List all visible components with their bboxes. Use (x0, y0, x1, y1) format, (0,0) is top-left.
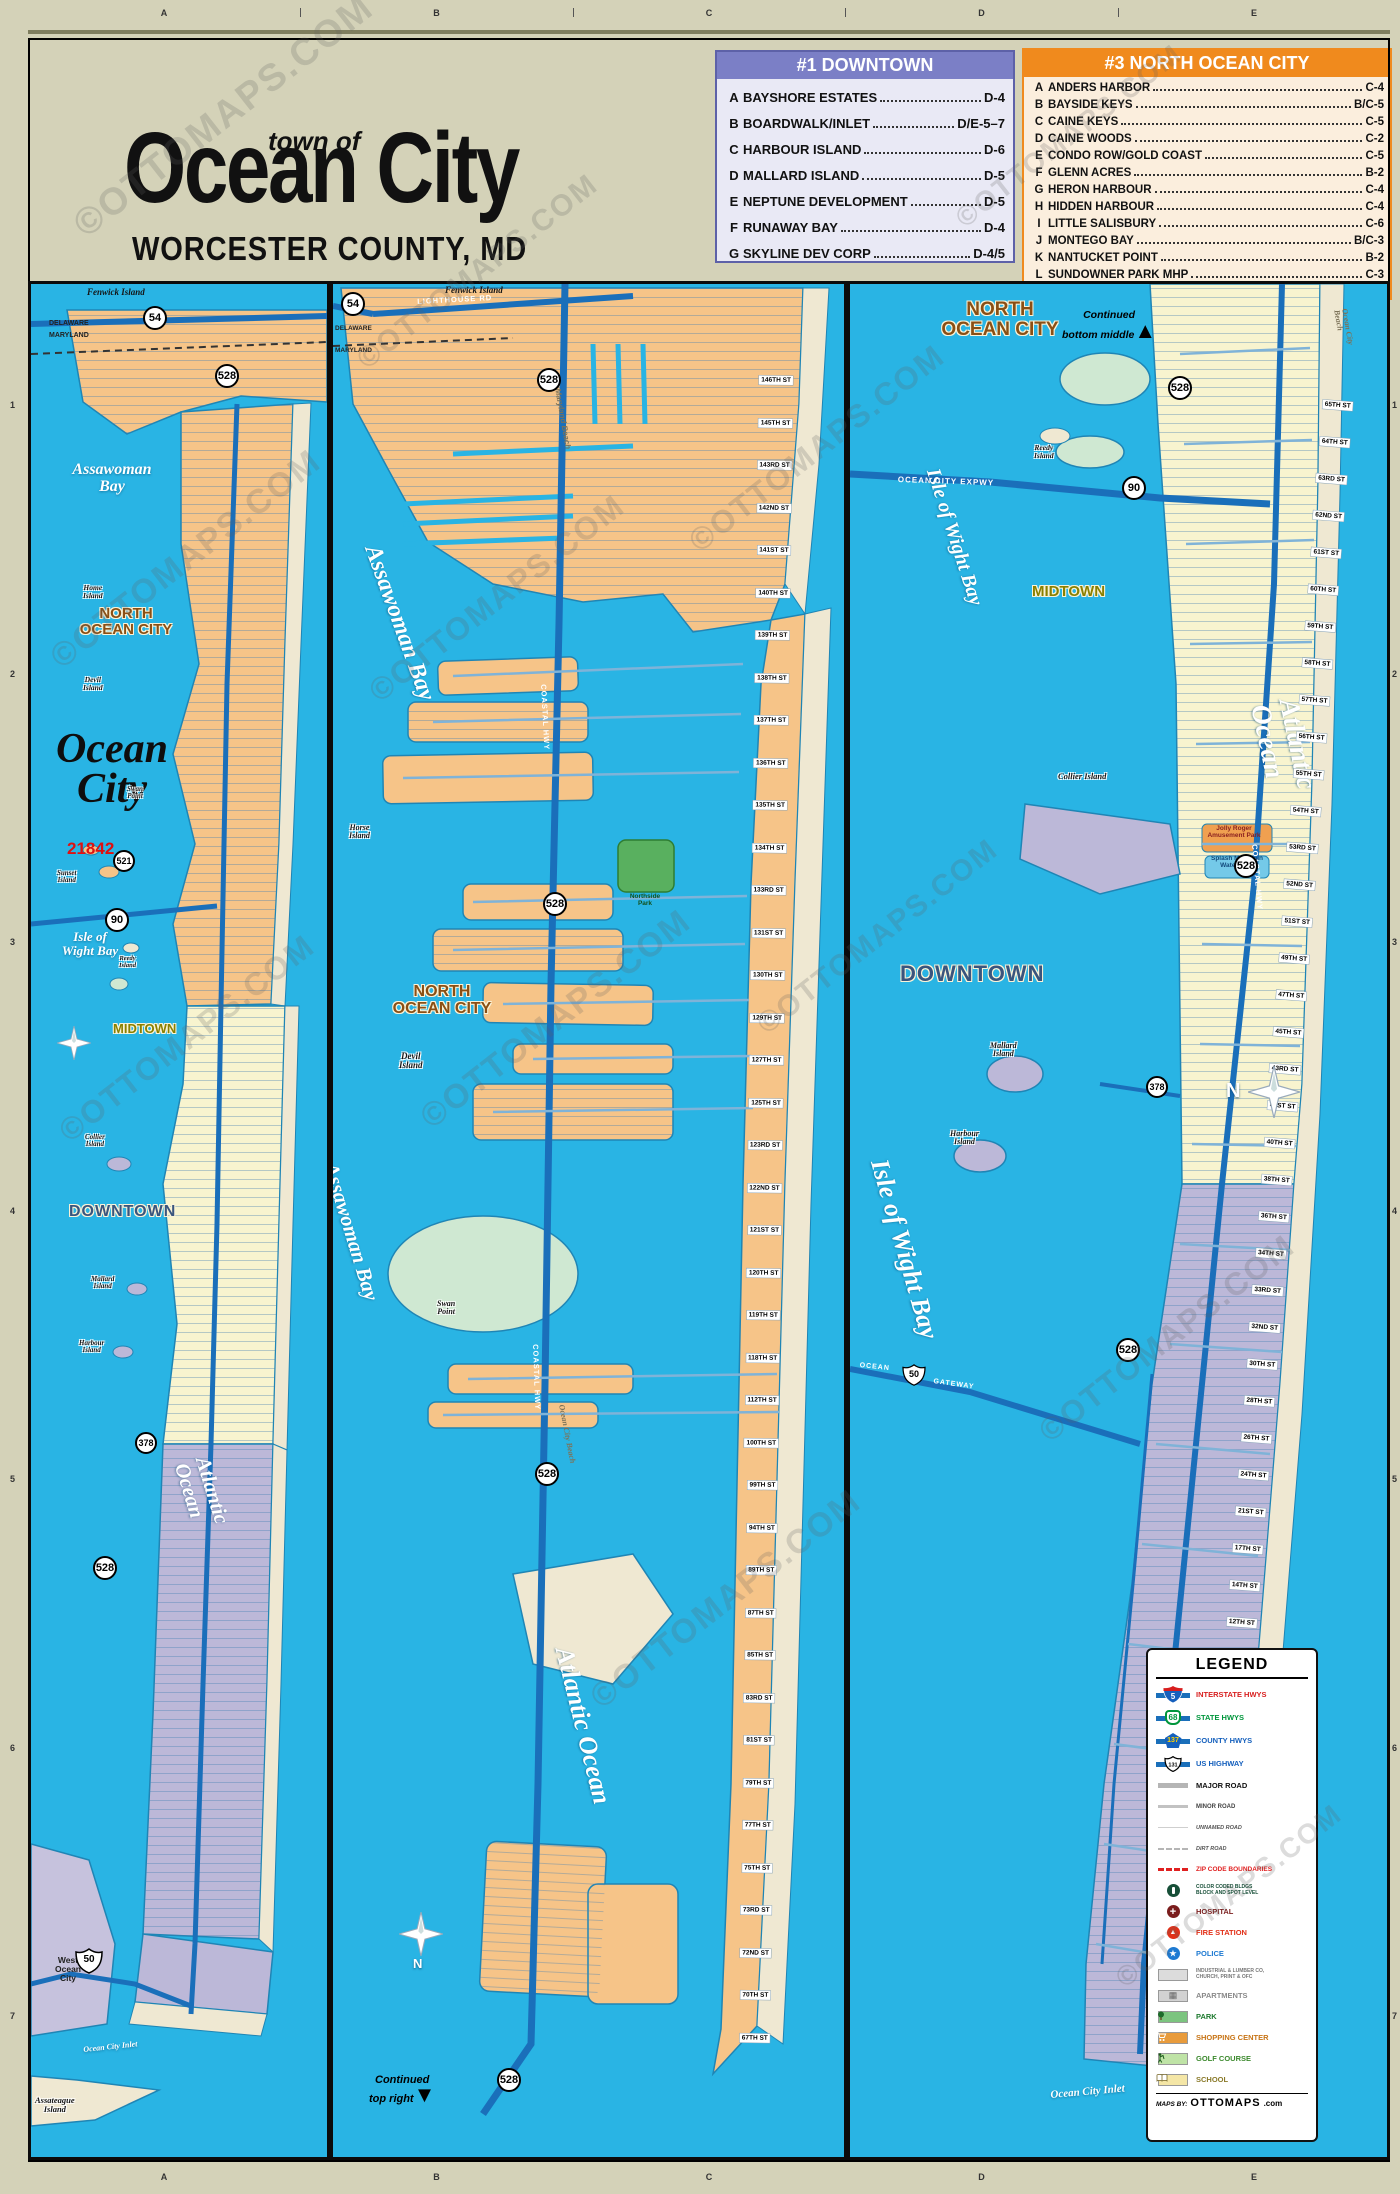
street-label: 129TH ST (750, 1013, 784, 1022)
unnamed-road-line-icon (1158, 1827, 1188, 1829)
label-coastal-hwy: COASTAL HWY (531, 1344, 541, 1410)
ruler-letter: E (1251, 8, 1257, 18)
ruler-letter: C (706, 8, 713, 18)
legend-interstate: 5 INTERSTATE HWYS (1156, 1683, 1308, 1706)
continued-note: Continued top right▼ (369, 2074, 435, 2105)
map-panel-north-ocean-city: Fenwick Island 54 LIGHTHOUSE RD DELAWARE… (330, 281, 847, 2160)
label-delaware: DELAWARE (335, 326, 372, 333)
label-sunset-island: Sunset Island (57, 870, 76, 885)
ruler-letter: D (978, 8, 985, 18)
label-devil-island: Devil Island (83, 676, 103, 692)
ruler-top: ABCDE (0, 8, 1400, 22)
ruler-tick (300, 8, 301, 17)
minor-road-line-icon (1158, 1805, 1188, 1808)
route-shield-528: 528 (93, 1556, 117, 1580)
street-label: 38TH ST (1261, 1174, 1292, 1185)
street-label: 56TH ST (1296, 732, 1327, 743)
legend-credit: MAPS BY: OTTOMAPS .com (1156, 2093, 1308, 2109)
street-label: 112TH ST (745, 1395, 778, 1404)
interstate-shield-icon: 5 (1163, 1686, 1183, 1703)
legend-golf-course: GOLF COURSE (1156, 2048, 1308, 2069)
legend-fire-station: ▲ FIRE STATION (1156, 1922, 1308, 1943)
county-hwy-shield-icon: 137 (1165, 1733, 1182, 1748)
street-label: 136TH ST (754, 758, 788, 767)
street-label: 65TH ST (1322, 400, 1353, 411)
route-shield-528: 528 (543, 892, 567, 916)
street-label: 94TH ST (747, 1523, 777, 1532)
street-label: 32ND ST (1249, 1322, 1280, 1333)
street-label: 40TH ST (1264, 1137, 1295, 1148)
street-label: 121ST ST (748, 1225, 781, 1234)
ruler-bar (28, 30, 1390, 34)
ruler-number: 3 (1392, 937, 1397, 947)
state-hwy-shield-icon: 68 (1165, 1710, 1181, 1725)
ruler-bottom: ABCDE (0, 2172, 1400, 2186)
street-label: 131ST ST (752, 928, 785, 937)
street-label: 83RD ST (744, 1693, 775, 1702)
street-label: 64TH ST (1319, 437, 1350, 448)
label-assawoman-bay: Assawoman Bay (57, 462, 167, 496)
down-arrow-icon: ▼ (414, 2082, 436, 2107)
route-shield-521: 521 (113, 850, 135, 872)
street-label: 79TH ST (743, 1778, 773, 1787)
street-label: 55TH ST (1293, 769, 1324, 780)
book-icon (1158, 2074, 1188, 2086)
street-label-column: 146TH ST145TH ST143RD ST142ND ST141ST ST… (639, 374, 793, 2096)
street-label: 62ND ST (1313, 510, 1344, 521)
street-label: 45TH ST (1273, 1027, 1304, 1038)
street-label: 142ND ST (757, 503, 791, 512)
ruler-number: 5 (10, 1474, 15, 1484)
industrial-swatch-icon (1158, 1969, 1188, 1981)
street-label: 49TH ST (1279, 953, 1310, 964)
legend-hospital: + HOSPITAL (1156, 1901, 1308, 1922)
apartments-icon: ▦ (1158, 1990, 1188, 2002)
street-label: 57TH ST (1299, 695, 1330, 706)
street-label: 61ST ST (1311, 547, 1341, 558)
street-label: 137TH ST (755, 715, 789, 724)
street-label: 52ND ST (1284, 879, 1315, 890)
ruler-number: 7 (1392, 2011, 1397, 2021)
street-label: 26TH ST (1241, 1432, 1272, 1443)
ruler-number: 1 (10, 400, 15, 410)
street-label: 47TH ST (1276, 990, 1307, 1001)
ruler-left: 1234567 (10, 0, 24, 2194)
ruler-letter: A (161, 8, 168, 18)
street-label: 118TH ST (746, 1353, 779, 1362)
label-maryland: MARYLAND (49, 332, 89, 339)
up-arrow-icon: ▲ (1134, 318, 1156, 343)
street-label: 141ST ST (757, 546, 790, 555)
label-home-island: Home Island (83, 584, 103, 600)
ruler-letter: D (978, 2172, 985, 2182)
street-label: 125TH ST (749, 1098, 783, 1107)
street-label: 140TH ST (756, 588, 790, 597)
compass-north-letter: N (1226, 1080, 1240, 1103)
label-maryland: MARYLAND (335, 348, 372, 355)
label-midtown: MIDTOWN (1032, 584, 1105, 600)
ruler-letter: B (433, 2172, 440, 2182)
street-label: 81ST ST (744, 1735, 774, 1744)
ocean-city-map-page: ABCDE ABCDE 1234567 1234567 ©OTTOMAPS.CO… (0, 0, 1400, 2194)
street-label: 146TH ST (759, 376, 793, 385)
legend: LEGEND 5 INTERSTATE HWYS 68 STATE HWYS 1… (1146, 1648, 1318, 2142)
ruler-tick (573, 8, 574, 17)
label-assateague-island: Assateague Island (35, 2096, 75, 2114)
legend-shopping-center: SHOPPING CENTER (1156, 2027, 1308, 2048)
street-label: 89TH ST (746, 1565, 776, 1574)
street-label: 99TH ST (747, 1480, 777, 1489)
svg-text:5: 5 (1171, 1692, 1176, 1701)
legend-us-highway: 131 US HIGHWAY (1156, 1752, 1308, 1775)
street-label: 119TH ST (747, 1310, 780, 1319)
legend-major-road: MAJOR ROAD (1156, 1775, 1308, 1796)
route-shield-50: 50 (902, 1364, 926, 1386)
street-label: 63RD ST (1316, 473, 1347, 484)
route-shield-90: 90 (105, 908, 129, 932)
label-north-ocean-city: NORTH OCEAN CITY (357, 984, 527, 1018)
label-mallard-island: Mallard Island (91, 1276, 114, 1291)
street-label: 60TH ST (1308, 584, 1339, 595)
street-label: 34TH ST (1256, 1248, 1287, 1259)
label-downtown: DOWNTOWN (69, 1204, 176, 1221)
street-label: 21ST ST (1236, 1506, 1266, 1517)
fire-station-icon: ▲ (1167, 1926, 1180, 1939)
label-mallard-island: Mallard Island (990, 1042, 1017, 1059)
route-shield-528: 528 (497, 2068, 521, 2092)
ruler-number: 4 (1392, 1206, 1397, 1216)
golfer-icon (1158, 2053, 1188, 2065)
street-label: 58TH ST (1302, 658, 1333, 669)
label-collier-island: Collier Island (85, 1134, 105, 1149)
route-shield-528: 528 (1234, 854, 1258, 878)
route-shield-528: 528 (1168, 376, 1192, 400)
park-tree-icon (1158, 2011, 1188, 2023)
legend-apartments: ▦ APARTMENTS (1156, 1985, 1308, 2006)
street-label: 134TH ST (753, 843, 787, 852)
us-hwy-shield-icon: 131 (1164, 1756, 1182, 1772)
route-shield-378: 378 (135, 1432, 157, 1454)
map-panel-overview: Fenwick Island 54 DELAWARE MARYLAND 528 … (28, 281, 330, 2160)
legend-minor-road: MINOR ROAD (1156, 1796, 1308, 1817)
ruler-letter: E (1251, 2172, 1257, 2182)
label-north-ocean-city: NORTH OCEAN CITY (61, 606, 191, 638)
street-label: 73RD ST (741, 1905, 772, 1914)
legend-county-hwys: 137 COUNTY HWYS (1156, 1729, 1308, 1752)
ruler-right: 1234567 (1392, 0, 1400, 2194)
street-label: 59TH ST (1305, 621, 1336, 632)
street-label: 53RD ST (1287, 842, 1318, 853)
ruler-number: 3 (10, 937, 15, 947)
street-label: 75TH ST (742, 1863, 772, 1872)
street-label: 28TH ST (1244, 1396, 1275, 1407)
label-ocean-city: Ocean City (47, 730, 177, 810)
ruler-letter: A (161, 2172, 168, 2182)
label-swan-point: Swan Point (437, 1300, 455, 1317)
shopping-cart-icon (1158, 2032, 1188, 2044)
route-shield-54: 54 (143, 306, 167, 330)
color-coded-icon (1167, 1884, 1180, 1897)
label-reedy-island: Reedy Island (1034, 444, 1054, 460)
street-label: 72ND ST (740, 1948, 771, 1957)
street-label: 123RD ST (748, 1140, 782, 1149)
street-label: 36TH ST (1259, 1211, 1290, 1222)
street-label: 139TH ST (756, 631, 790, 640)
hospital-icon: + (1167, 1905, 1180, 1918)
label-zip-code: 21842 (67, 840, 114, 858)
route-shield-90: 90 (1122, 476, 1146, 500)
street-label: 127TH ST (750, 1055, 784, 1064)
street-label: 145TH ST (759, 418, 793, 427)
route-shield-50: 50 (75, 1948, 103, 1974)
ruler-number: 7 (10, 2011, 15, 2021)
street-label: 100TH ST (744, 1438, 778, 1447)
major-road-line-icon (1158, 1783, 1188, 1788)
legend-color-coded: COLOR CODED BLDGSBLOCK AND SPOT LEVEL (1156, 1880, 1308, 1901)
ruler-tick (1118, 8, 1119, 17)
police-icon: ★ (1167, 1947, 1180, 1960)
street-label: 30TH ST (1247, 1359, 1278, 1370)
legend-title: LEGEND (1156, 1656, 1308, 1674)
street-label: 14TH ST (1229, 1580, 1260, 1591)
zip-boundary-line-icon (1158, 1868, 1188, 1871)
route-shield-528: 528 (537, 368, 561, 392)
dirt-road-line-icon (1158, 1848, 1188, 1850)
street-label: 51ST ST (1282, 916, 1312, 927)
route-shield-378: 378 (1146, 1076, 1168, 1098)
label-collier-island: Collier Island (1058, 772, 1106, 781)
street-label: 17TH ST (1232, 1543, 1263, 1554)
street-label: 135TH ST (753, 800, 787, 809)
street-label: 77TH ST (743, 1820, 773, 1829)
map-panel-downtown-midtown: NORTH OCEAN CITY Continued bottom middle… (847, 281, 1390, 2160)
label-isle-of-wight-bay: Isle of Wight Bay (45, 930, 135, 957)
label-fenwick-island: Fenwick Island (87, 288, 145, 297)
label-reedy-island: Reedy Island (119, 956, 136, 970)
street-label: 33RD ST (1252, 1285, 1283, 1296)
ruler-tick (845, 8, 846, 17)
route-shield-528: 528 (215, 364, 239, 388)
ruler-number: 6 (1392, 1743, 1397, 1753)
legend-industrial: INDUSTRIAL & LUMBER CO,CHURCH, PRINT & O… (1156, 1964, 1308, 1985)
street-label: 12TH ST (1227, 1617, 1258, 1628)
ruler-letter: C (706, 2172, 713, 2182)
route-shield-528: 528 (535, 1462, 559, 1486)
street-label: 85TH ST (745, 1650, 775, 1659)
street-label: 70TH ST (740, 1990, 770, 1999)
label-devil-island: Devil Island (399, 1052, 423, 1071)
legend-school: SCHOOL (1156, 2069, 1308, 2090)
ruler-number: 2 (10, 669, 15, 679)
route-shield-528: 528 (1116, 1338, 1140, 1362)
street-label: 122ND ST (747, 1183, 781, 1192)
route-shield-54: 54 (341, 292, 365, 316)
label-swan-point: Swan Point (127, 786, 143, 801)
label-midtown: MIDTOWN (113, 1022, 176, 1036)
label-delaware: DELAWARE (49, 320, 89, 327)
street-label: 54TH ST (1290, 805, 1321, 816)
legend-state-hwys: 68 STATE HWYS (1156, 1706, 1308, 1729)
ruler-number: 1 (1392, 400, 1397, 410)
street-label: 133RD ST (751, 885, 785, 894)
continued-note: Continued bottom middle▲ (1062, 310, 1156, 341)
street-label: 143RD ST (757, 461, 791, 470)
street-label: 138TH ST (755, 673, 789, 682)
legend-park: PARK (1156, 2006, 1308, 2027)
ruler-number: 5 (1392, 1474, 1397, 1484)
label-horse-island: Horse Island (349, 824, 370, 841)
svg-text:131: 131 (1168, 1762, 1177, 1768)
label-harbour-island: Harbour Island (950, 1130, 979, 1147)
ruler-number: 2 (1392, 669, 1397, 679)
street-label: 87TH ST (746, 1608, 776, 1617)
compass-north-letter: N (413, 1956, 422, 1971)
ruler-letter: B (433, 8, 440, 18)
street-label: 120TH ST (747, 1268, 781, 1277)
ruler-number: 4 (10, 1206, 15, 1216)
label-harbour-island: Harbour Island (79, 1340, 104, 1355)
legend-dirt-road: DIRT ROAD (1156, 1838, 1308, 1859)
legend-unnamed-road: UNNAMED ROAD (1156, 1817, 1308, 1838)
street-label: 67TH ST (740, 2033, 770, 2042)
street-label: 130TH ST (751, 970, 785, 979)
label-downtown: DOWNTOWN (900, 962, 1044, 985)
legend-police: ★ POLICE (1156, 1943, 1308, 1964)
street-label: 24TH ST (1238, 1469, 1269, 1480)
ruler-number: 6 (10, 1743, 15, 1753)
legend-zip-boundaries: ZIP CODE BOUNDARIES (1156, 1859, 1308, 1880)
